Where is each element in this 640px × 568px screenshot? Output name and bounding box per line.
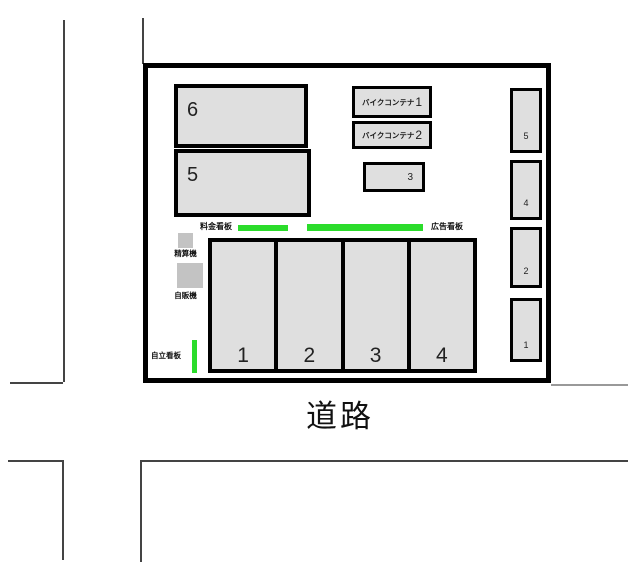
parking-spot-large-1-label: 1 bbox=[237, 345, 249, 369]
parking-spot-large-4: 4 bbox=[411, 242, 473, 369]
building-6: 6 bbox=[174, 84, 308, 148]
parking-spot-right-1-label: 1 bbox=[523, 340, 528, 359]
pay-machine-label: 精算機 bbox=[167, 250, 204, 258]
parking-spot-large-3: 3 bbox=[345, 242, 407, 369]
road-edge-top-vertical bbox=[142, 18, 144, 64]
vending-machine-label: 自販機 bbox=[167, 292, 204, 300]
parking-spot-3-small-label: 3 bbox=[407, 172, 422, 183]
bike-container-2-number: 2 bbox=[415, 129, 422, 141]
bike-container-2-label: バイクコンテナ bbox=[362, 130, 414, 141]
parking-spot-right-2-label: 2 bbox=[523, 266, 528, 285]
parking-spot-large-1: 1 bbox=[212, 242, 274, 369]
standing-sign-bar bbox=[192, 340, 197, 373]
road-edge-right-horizontal bbox=[551, 384, 628, 386]
parking-spot-right-2: 2 bbox=[510, 227, 542, 288]
fee-sign-bar bbox=[238, 225, 288, 231]
building-5-label: 5 bbox=[178, 153, 307, 185]
road-label: 道路 bbox=[260, 391, 420, 436]
bike-container-2: バイクコンテナ 2 bbox=[352, 121, 432, 149]
road-edge-bottom-left-vertical bbox=[62, 460, 64, 560]
parking-spot-right-1: 1 bbox=[510, 298, 542, 362]
parking-spot-right-4-label: 4 bbox=[523, 198, 528, 217]
parking-site-plan-diagram: 6 5 バイクコンテナ 1 バイクコンテナ 2 3 1 2 3 bbox=[0, 0, 640, 568]
ad-sign-bar bbox=[307, 224, 423, 231]
parking-spot-right-4: 4 bbox=[510, 160, 542, 220]
bike-container-1-label: バイクコンテナ bbox=[362, 97, 414, 108]
parking-block-large: 1 2 3 4 bbox=[208, 238, 477, 373]
parking-spot-large-2: 2 bbox=[278, 242, 340, 369]
building-6-label: 6 bbox=[178, 88, 304, 120]
vending-machine bbox=[177, 263, 203, 288]
ad-sign-label: 広告看板 bbox=[431, 223, 463, 232]
road-edge-left-vertical bbox=[63, 20, 65, 382]
road-edge-left-corner-horizontal bbox=[10, 382, 63, 384]
building-5: 5 bbox=[174, 149, 311, 217]
parking-spot-large-4-label: 4 bbox=[436, 345, 448, 369]
site-boundary: 6 5 バイクコンテナ 1 バイクコンテナ 2 3 1 2 3 bbox=[143, 63, 551, 383]
parking-spot-right-5-label: 5 bbox=[523, 131, 528, 150]
fee-sign-label: 料金看板 bbox=[200, 223, 232, 232]
parking-spot-3-small: 3 bbox=[363, 162, 425, 192]
road-edge-bottom-right-horizontal bbox=[140, 460, 628, 462]
bike-container-1-number: 1 bbox=[415, 96, 422, 108]
road-edge-bottom-left-horizontal bbox=[8, 460, 63, 462]
parking-spot-right-5: 5 bbox=[510, 88, 542, 153]
pay-machine bbox=[178, 233, 193, 248]
road-edge-bottom-right-vertical bbox=[140, 460, 142, 562]
standing-sign-label: 自立看板 bbox=[151, 352, 181, 360]
parking-spot-large-3-label: 3 bbox=[370, 345, 382, 369]
parking-spot-large-2-label: 2 bbox=[304, 345, 316, 369]
bike-container-1: バイクコンテナ 1 bbox=[352, 86, 432, 118]
